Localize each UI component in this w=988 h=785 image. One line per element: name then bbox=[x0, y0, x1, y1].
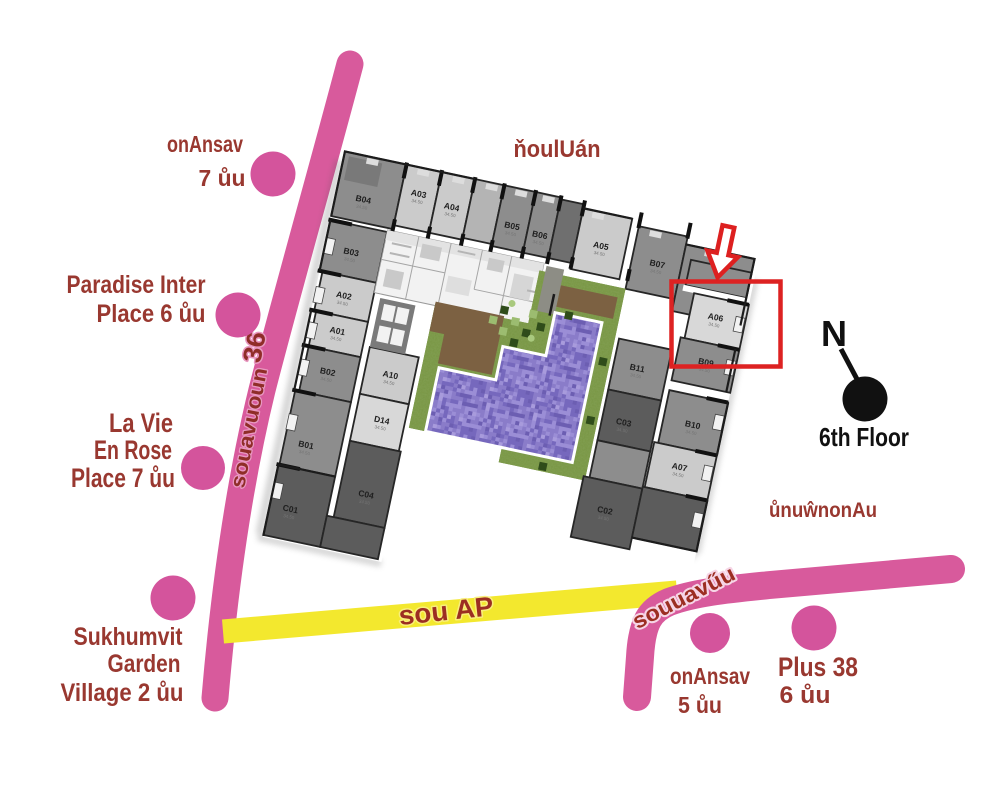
svg-text:Plus 38: Plus 38 bbox=[778, 652, 858, 682]
svg-text:Garden: Garden bbox=[108, 650, 181, 678]
svg-text:6th Floor: 6th Floor bbox=[819, 422, 909, 452]
svg-text:ůnuŵnonAu: ůnuŵnonAu bbox=[769, 499, 877, 522]
svg-text:N: N bbox=[821, 313, 847, 354]
svg-text:Place 6 ůu: Place 6 ůu bbox=[97, 300, 206, 328]
svg-text:La Vie: La Vie bbox=[109, 408, 173, 438]
svg-text:Village 2 ůu: Village 2 ůu bbox=[61, 679, 184, 707]
svg-text:7 ůu: 7 ůu bbox=[199, 165, 246, 191]
svg-text:Paradise Inter: Paradise Inter bbox=[67, 271, 206, 299]
svg-text:ňoulUán: ňoulUán bbox=[514, 136, 601, 163]
svg-text:onAnsav: onAnsav bbox=[670, 663, 750, 689]
svg-text:Sukhumvit: Sukhumvit bbox=[74, 623, 184, 651]
svg-text:onAnsav: onAnsav bbox=[167, 131, 243, 157]
svg-text:sou AP: sou AP bbox=[397, 591, 495, 631]
svg-text:Place 7 ůu: Place 7 ůu bbox=[71, 463, 175, 493]
svg-text:6 ůu: 6 ůu bbox=[780, 682, 831, 709]
svg-text:5 ůu: 5 ůu bbox=[678, 692, 722, 718]
svg-text:En Rose: En Rose bbox=[94, 435, 172, 465]
